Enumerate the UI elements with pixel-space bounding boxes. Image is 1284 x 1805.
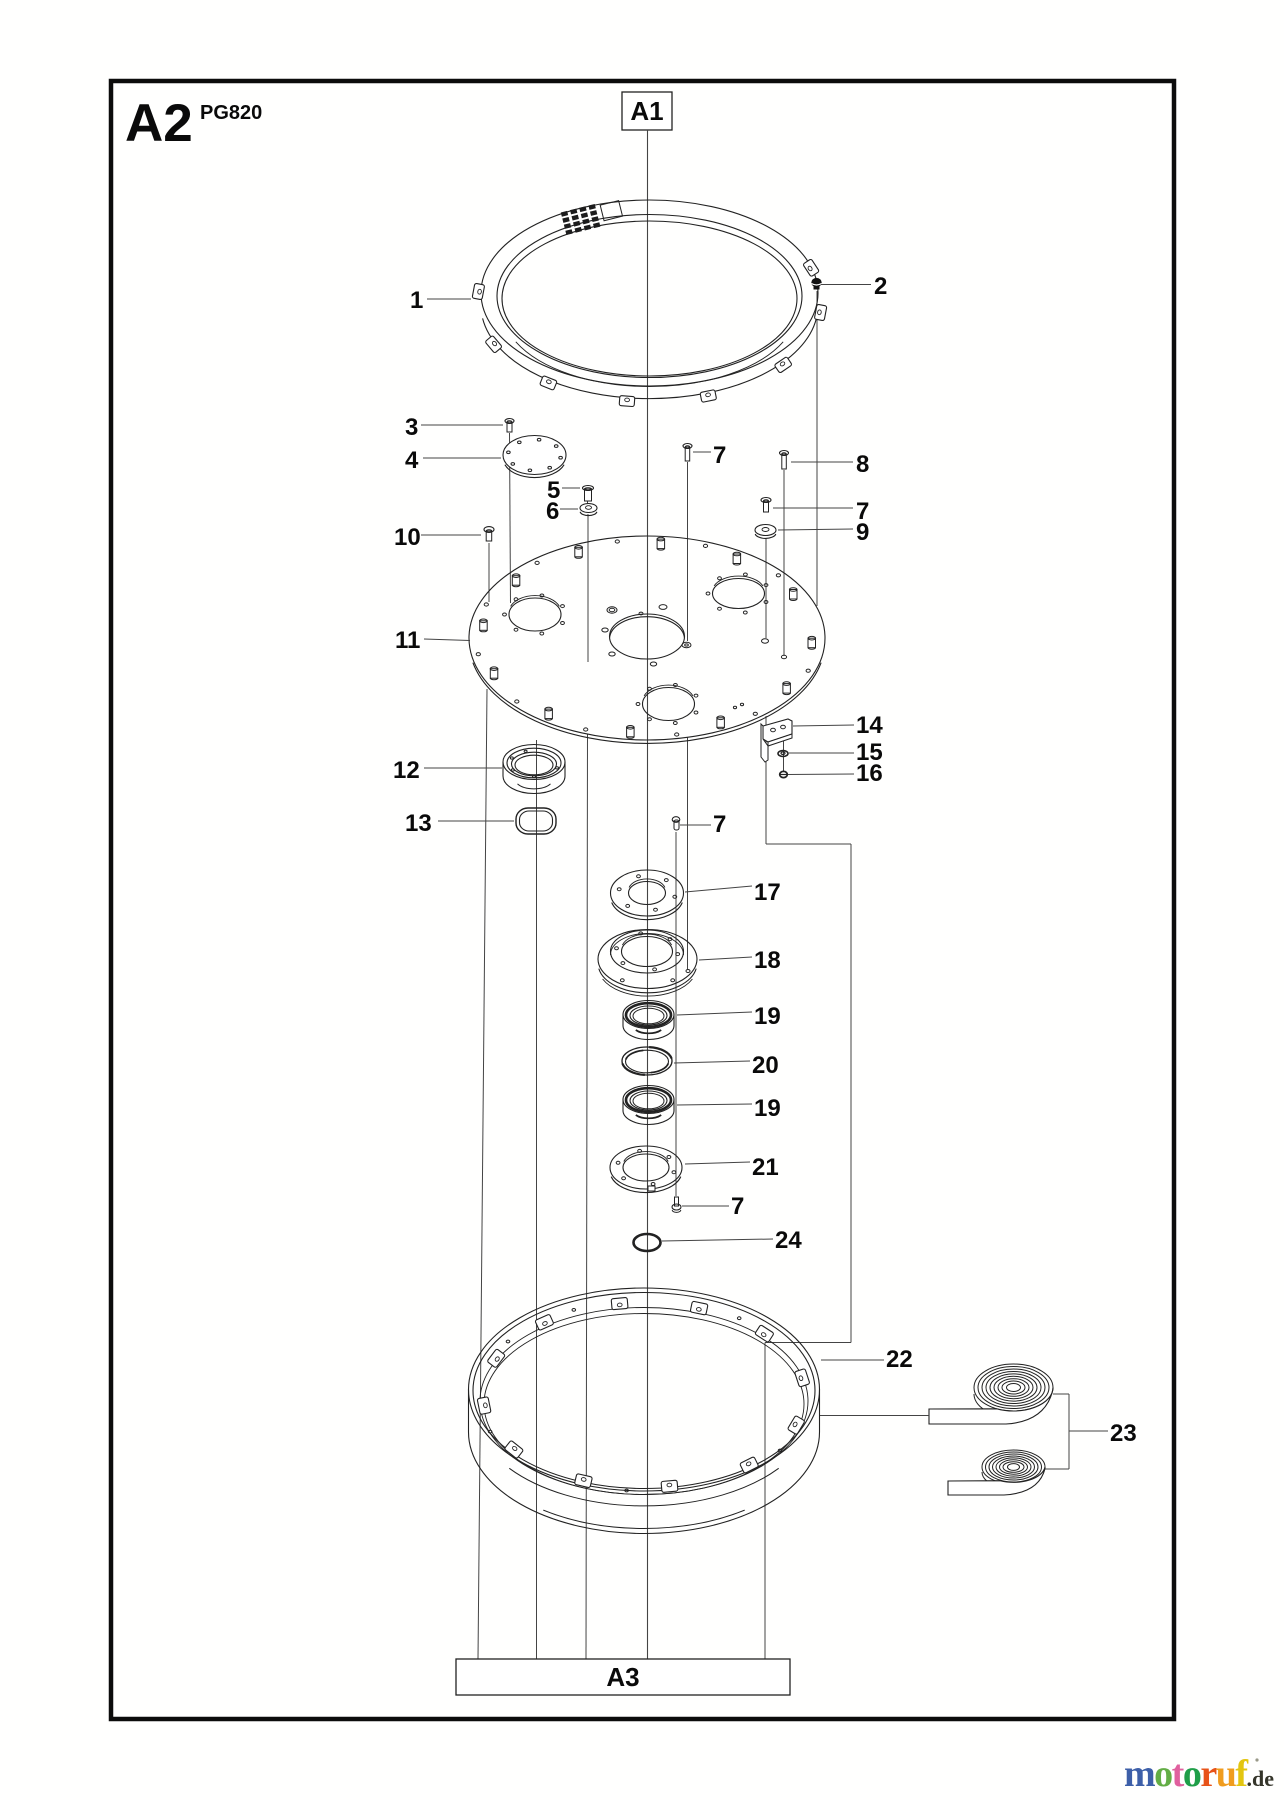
- svg-text:A3: A3: [606, 1662, 639, 1692]
- svg-text:14: 14: [856, 712, 883, 739]
- svg-text:2: 2: [874, 273, 887, 300]
- svg-text:18: 18: [754, 947, 781, 974]
- svg-text:13: 13: [405, 810, 432, 837]
- svg-text:23: 23: [1110, 1420, 1137, 1447]
- svg-text:24: 24: [775, 1227, 802, 1254]
- svg-text:6: 6: [546, 498, 559, 525]
- svg-text:7: 7: [713, 811, 726, 838]
- svg-text:4: 4: [405, 447, 419, 474]
- svg-text:11: 11: [395, 627, 420, 654]
- svg-text:7: 7: [731, 1193, 744, 1220]
- svg-text:PG820: PG820: [200, 102, 262, 124]
- svg-text:motoruf.de: motoruf.de: [1124, 1753, 1274, 1795]
- svg-text:1: 1: [410, 287, 423, 314]
- svg-text:A2: A2: [125, 94, 193, 153]
- svg-text:9: 9: [856, 519, 869, 546]
- svg-text:21: 21: [752, 1154, 779, 1181]
- svg-text:17: 17: [754, 879, 781, 906]
- svg-text:7: 7: [713, 442, 726, 469]
- svg-text:19: 19: [754, 1095, 781, 1122]
- svg-text:A1: A1: [630, 96, 663, 126]
- svg-text:3: 3: [405, 414, 418, 441]
- svg-text:22: 22: [886, 1346, 913, 1373]
- svg-text:10: 10: [394, 524, 421, 551]
- svg-text:8: 8: [856, 451, 869, 478]
- svg-text:20: 20: [752, 1052, 779, 1079]
- svg-text:16: 16: [856, 760, 883, 787]
- svg-text:19: 19: [754, 1003, 781, 1030]
- svg-text:12: 12: [393, 757, 420, 784]
